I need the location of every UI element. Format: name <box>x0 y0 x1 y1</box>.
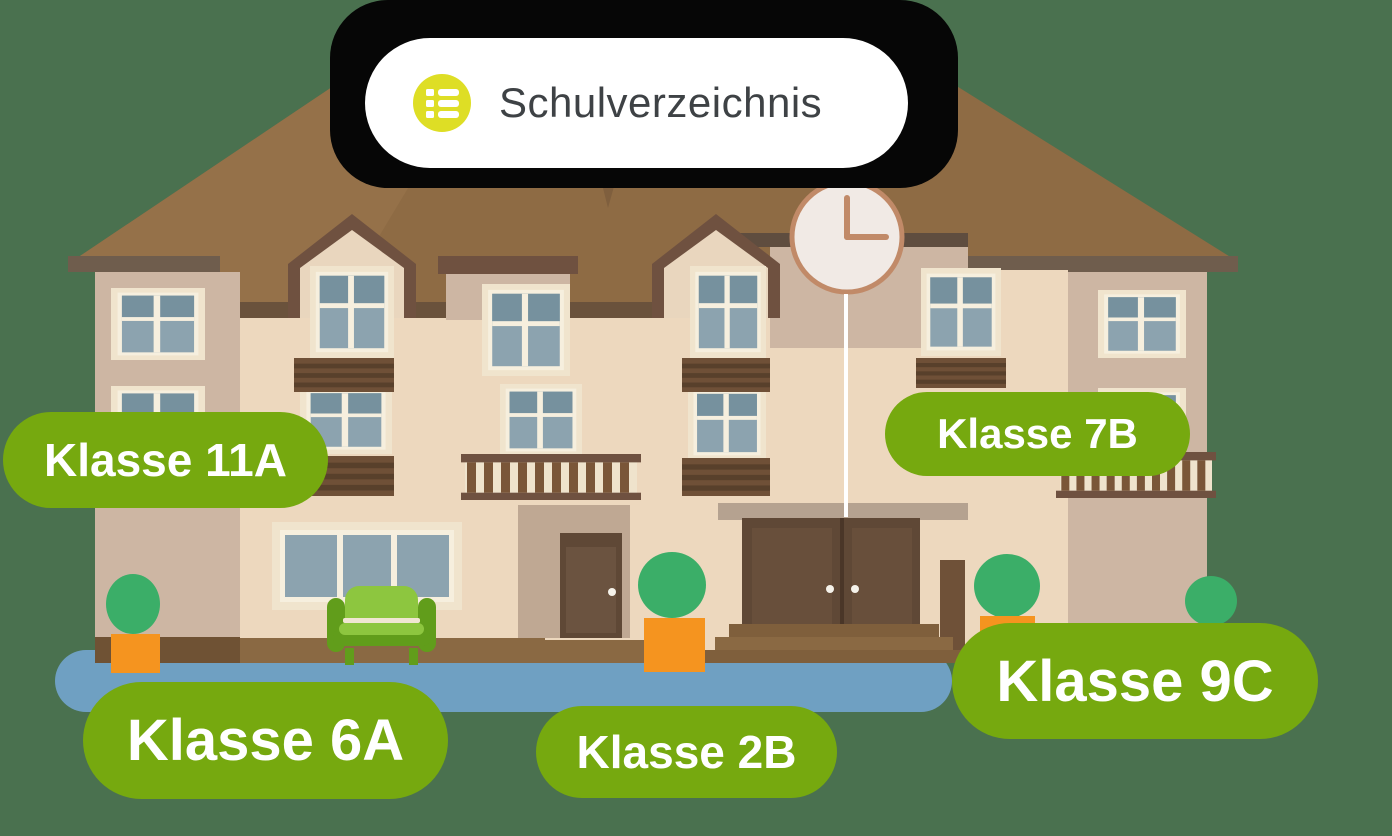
pot <box>644 618 705 672</box>
entrance-steps <box>701 650 967 663</box>
class-label-6a[interactable]: Klasse 6A <box>83 682 448 799</box>
window <box>482 284 570 376</box>
class-label-2b[interactable]: Klasse 2B <box>536 706 837 798</box>
window <box>688 386 766 460</box>
bush <box>638 552 706 618</box>
class-label-9c[interactable]: Klasse 9C <box>952 623 1318 739</box>
dormer-roof <box>438 256 578 274</box>
sign-title: Schulverzeichnis <box>499 79 822 127</box>
bush <box>106 574 160 634</box>
window <box>111 288 205 360</box>
balcony-left <box>461 454 641 500</box>
entrance-doors <box>518 503 968 638</box>
class-label-11a[interactable]: Klasse 11A <box>3 412 328 508</box>
directory-sign: Schulverzeichnis <box>365 38 908 168</box>
bush <box>974 554 1040 618</box>
class-label-7b[interactable]: Klasse 7B <box>885 392 1190 476</box>
window <box>1098 290 1186 358</box>
scene: Schulverzeichnis Klasse 11A Klasse 7B Kl… <box>0 0 1392 836</box>
bush <box>1185 576 1237 626</box>
window <box>310 266 394 358</box>
window <box>921 268 1001 356</box>
pot <box>111 634 160 673</box>
window <box>690 266 766 358</box>
window <box>500 384 582 456</box>
list-icon <box>413 74 471 132</box>
